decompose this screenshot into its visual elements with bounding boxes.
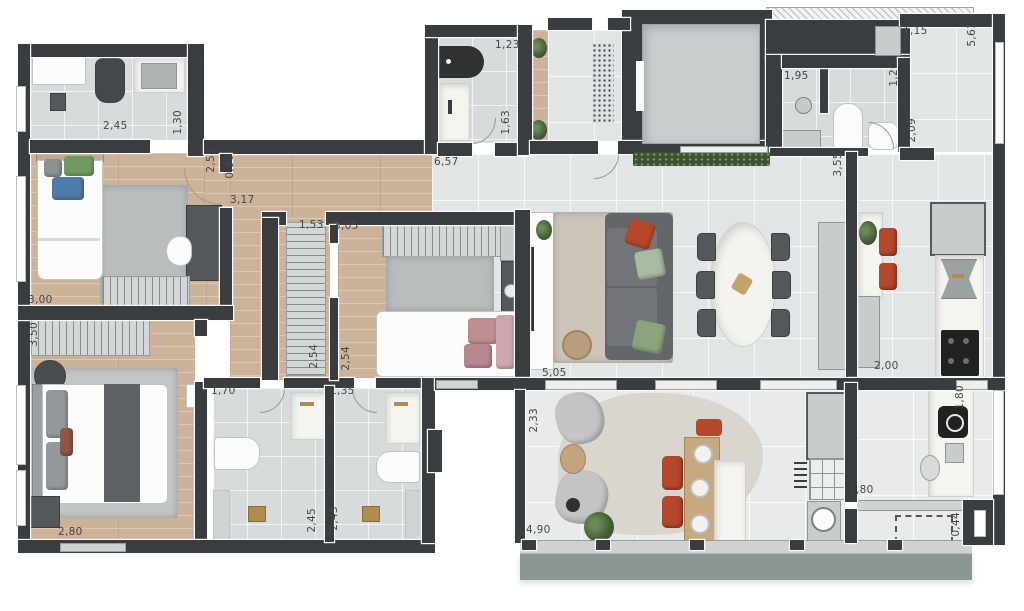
- wall: [425, 25, 438, 154]
- sliding-door: [760, 380, 837, 390]
- wall: [515, 210, 530, 390]
- dining-chair: [697, 233, 716, 261]
- wall: [220, 208, 232, 312]
- plant: [584, 512, 614, 542]
- wall: [435, 378, 1005, 390]
- faucet-icon: [448, 100, 452, 114]
- place-setting: [693, 444, 713, 464]
- shower-glass: [213, 490, 230, 540]
- burner-icon: [948, 338, 954, 344]
- wall: [18, 44, 204, 57]
- outdoor-chair: [662, 496, 683, 528]
- wall: [608, 18, 630, 30]
- wall: [262, 218, 278, 380]
- planter: [633, 152, 770, 166]
- balcony-ledge: [520, 552, 972, 580]
- service-door: [956, 380, 988, 390]
- wall: [325, 386, 334, 542]
- floor-plan: 2,451,301,231,636,571,951,155,611,202,09…: [0, 0, 1024, 611]
- window: [995, 42, 1004, 144]
- vent-icon: [794, 462, 807, 492]
- wall: [515, 390, 525, 543]
- wall: [330, 298, 338, 380]
- toilet: [833, 103, 863, 149]
- wall: [766, 55, 782, 152]
- elevator: [642, 24, 760, 144]
- wall: [900, 14, 1005, 27]
- burner-icon: [963, 338, 969, 344]
- pillow: [631, 319, 667, 355]
- window: [16, 86, 26, 132]
- grill: [809, 458, 845, 500]
- washbasin: [141, 63, 177, 89]
- wall: [898, 58, 910, 152]
- shower-glass: [405, 490, 422, 540]
- pillow: [468, 318, 498, 344]
- laundry-counter: [928, 383, 974, 497]
- future-cabinet-outline: [895, 515, 953, 543]
- island-cabinet: [857, 296, 880, 368]
- shower-fixture-icon: [50, 93, 66, 111]
- refrigerator: [930, 202, 986, 256]
- shower-fixture-icon: [362, 506, 380, 522]
- wall: [782, 55, 910, 68]
- plant: [531, 38, 547, 58]
- wall: [530, 141, 598, 154]
- dining-chair: [772, 271, 791, 299]
- sliding-door: [655, 380, 717, 390]
- wall: [425, 25, 530, 37]
- bathtub-counter: [438, 46, 484, 78]
- wall: [548, 18, 592, 30]
- washbasin-counter: [438, 83, 470, 141]
- pillow: [52, 177, 84, 200]
- floor-grate: [592, 43, 614, 123]
- railing-post: [690, 540, 704, 550]
- appliance: [945, 443, 964, 463]
- burner-icon: [963, 358, 969, 364]
- window: [16, 385, 26, 465]
- closet-shelf: [875, 26, 901, 56]
- place-setting: [690, 478, 710, 498]
- outdoor-chair: [696, 419, 722, 436]
- sink-basin: [811, 507, 836, 532]
- railing-post: [596, 540, 610, 550]
- dining-chair: [696, 271, 715, 299]
- wall: [330, 225, 338, 243]
- window: [16, 176, 26, 282]
- nightstand: [30, 496, 60, 528]
- shower-head-icon: [795, 97, 812, 114]
- railing-post: [790, 540, 804, 550]
- coffee-table: [562, 330, 592, 360]
- wall-column: [428, 430, 442, 472]
- pillow: [44, 159, 62, 177]
- pillow: [64, 156, 94, 176]
- shelf: [779, 130, 821, 149]
- gourmet-counter: [714, 460, 746, 546]
- bar-stool: [879, 263, 897, 290]
- wardrobe: [286, 222, 326, 376]
- shower-fixture-icon: [248, 506, 266, 522]
- washbasin-counter: [385, 392, 420, 444]
- window: [680, 146, 768, 153]
- bar-stool: [879, 228, 897, 256]
- wall: [220, 154, 232, 172]
- plant: [536, 220, 552, 240]
- railing-post: [888, 540, 902, 550]
- rug: [386, 256, 494, 312]
- toilet: [95, 58, 125, 103]
- burner-icon: [948, 358, 954, 364]
- dining-chair: [771, 233, 790, 261]
- dining-chair: [771, 309, 790, 337]
- wall: [204, 140, 432, 154]
- balcony-railing: [520, 540, 972, 553]
- wall: [326, 212, 528, 225]
- wall: [18, 306, 233, 320]
- faucet-icon: [952, 274, 964, 278]
- wardrobe: [102, 276, 190, 308]
- service-corridor-floor: [910, 27, 993, 152]
- pillow: [496, 315, 515, 369]
- cooktop: [941, 330, 979, 376]
- window: [993, 390, 1004, 495]
- railing-post: [522, 540, 536, 550]
- sideboard: [818, 222, 848, 370]
- grill-counter: [806, 392, 850, 460]
- window-sill: [60, 543, 126, 552]
- pillow: [60, 428, 73, 456]
- drain-icon: [446, 59, 451, 64]
- faucet-icon: [394, 402, 408, 406]
- door-track: [857, 500, 963, 511]
- washbasin-counter: [290, 392, 326, 440]
- wardrobe: [30, 318, 150, 356]
- pillow: [634, 248, 666, 280]
- place-setting: [690, 514, 710, 534]
- toilet: [376, 451, 420, 483]
- wall: [845, 383, 857, 502]
- window: [974, 510, 986, 537]
- shower-tray: [32, 57, 86, 85]
- elevator-door: [636, 61, 644, 111]
- wall: [845, 509, 857, 543]
- floor-lamp: [566, 498, 580, 512]
- side-table: [560, 444, 586, 474]
- wall: [438, 143, 472, 156]
- wall: [900, 148, 934, 160]
- bed-blanket: [104, 384, 140, 502]
- wall: [195, 382, 207, 542]
- window: [16, 470, 26, 526]
- wall: [195, 320, 207, 336]
- plant: [859, 221, 877, 245]
- toilet: [214, 437, 260, 470]
- wall: [188, 44, 204, 156]
- dining-chair: [697, 309, 716, 337]
- wall: [284, 378, 354, 388]
- plant: [530, 120, 547, 140]
- pillow: [464, 344, 492, 368]
- chair: [166, 236, 192, 266]
- sliding-door: [545, 380, 617, 390]
- bed-fold: [38, 238, 100, 241]
- shower-partition: [820, 68, 828, 113]
- basket: [920, 455, 940, 481]
- wall: [30, 140, 150, 153]
- washer-door-icon: [946, 414, 964, 432]
- window-sill: [436, 380, 478, 389]
- wall: [846, 152, 857, 382]
- wall: [518, 25, 532, 155]
- outdoor-chair: [662, 456, 683, 490]
- wall: [204, 378, 260, 388]
- faucet-icon: [300, 402, 314, 406]
